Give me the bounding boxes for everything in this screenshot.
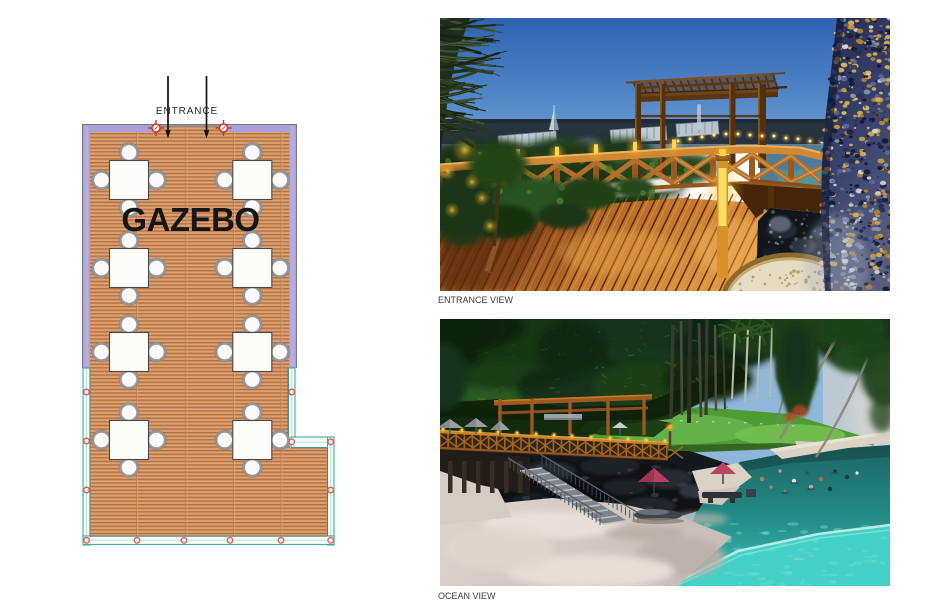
svg-text:GAZEBO: GAZEBO [121, 201, 259, 238]
svg-text:ENTRANCE: ENTRANCE [156, 106, 218, 117]
